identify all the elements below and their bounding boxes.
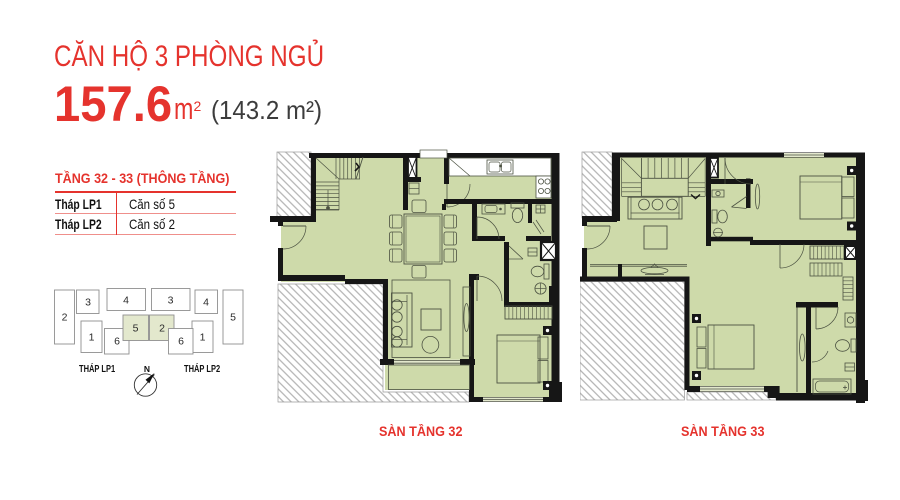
svg-text:6: 6 xyxy=(114,336,120,348)
svg-text:2: 2 xyxy=(62,312,68,324)
svg-text:1: 1 xyxy=(200,332,206,344)
svg-text:5: 5 xyxy=(230,312,236,324)
svg-text:2: 2 xyxy=(159,323,165,335)
svg-text:4: 4 xyxy=(203,297,209,309)
svg-text:4: 4 xyxy=(123,295,129,307)
svg-text:3: 3 xyxy=(85,297,91,309)
svg-text:N: N xyxy=(144,364,150,374)
svg-text:1: 1 xyxy=(89,332,95,344)
svg-text:5: 5 xyxy=(133,323,139,335)
svg-text:3: 3 xyxy=(168,295,174,307)
svg-text:6: 6 xyxy=(178,336,184,348)
